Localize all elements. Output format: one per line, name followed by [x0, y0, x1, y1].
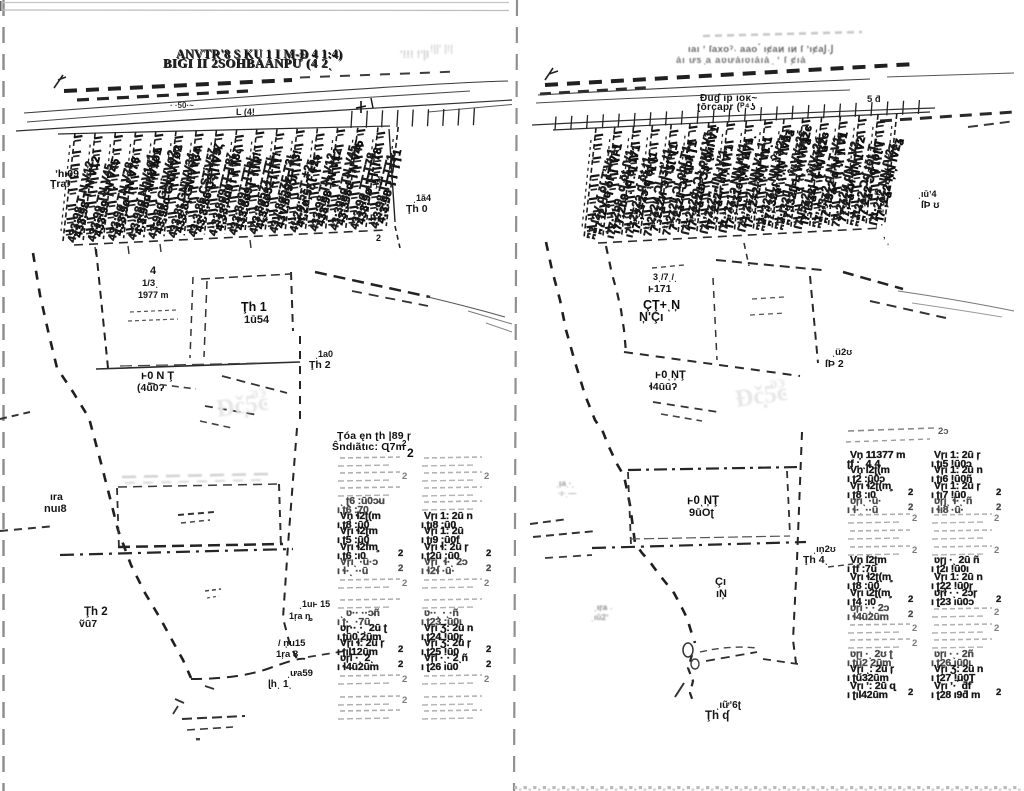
- svg-text:2: 2: [908, 687, 913, 698]
- svg-text:ͺı̦aͺ·ͺ: ͺı̦aͺ·ͺ: [556, 478, 574, 489]
- svg-text:ı ʈ26 ıū0: ı ʈ26 ıū0: [421, 661, 459, 673]
- svg-text:ı ʈıl42ūm: ı ʈıl42ūm: [847, 689, 888, 701]
- svg-text:ı ʈ28 ı9ƌ m: ı ʈ28 ı9ƌ m: [931, 689, 980, 701]
- svg-text:·ı·ͺ—: ·ı·ͺ—: [558, 489, 576, 498]
- svg-text:'!!! !'|I: '!!! !'|I: [400, 49, 429, 61]
- svg-text:2: 2: [486, 548, 491, 559]
- svg-text:2: 2: [994, 623, 999, 634]
- svg-text:BIGI II 2SOHBAANPƯ (4 2ͺ: BIGI II 2SOHBAANPƯ (4 2ͺ: [164, 57, 334, 71]
- svg-text:P: P: [370, 213, 376, 223]
- svg-text:ͱ0 N Ţ: ͱ0 N Ţ: [141, 370, 174, 382]
- svg-text:1/3ͺ: 1/3ͺ: [142, 278, 158, 289]
- svg-text:ı ɬ4ū2ūm: ı ɬ4ū2ūm: [337, 661, 379, 673]
- svg-text:2: 2: [486, 563, 491, 574]
- svg-text:ͱ0ͺŅŢ: ͱ0ͺŅŢ: [655, 369, 686, 381]
- svg-text:2: 2: [398, 659, 403, 670]
- svg-text:ͱ0ͺŅŢ: ͱ0ͺŅŢ: [687, 495, 719, 507]
- svg-text:5 ƌ: 5 ƌ: [867, 94, 881, 105]
- svg-text:ͺ1uͱ 15: ͺ1uͱ 15: [299, 599, 330, 610]
- svg-text:2: 2: [402, 695, 407, 706]
- svg-text:ͺıū2ʼ: ͺıū2ʼ: [591, 612, 608, 623]
- svg-text:2: 2: [908, 609, 913, 620]
- svg-text:2ͻ: 2ͻ: [938, 426, 949, 437]
- svg-text:ͱ171: ͱ171: [648, 283, 672, 295]
- svg-text:2: 2: [912, 513, 917, 524]
- svg-text:ſÞ 2: ſÞ 2: [825, 358, 844, 370]
- svg-text:ʈōrcapr (ᴾ⁴ʖ: ʈōrcapr (ᴾ⁴ʖ: [697, 102, 756, 113]
- svg-text:Ţh 4ͺ: Ţh 4ͺ: [803, 554, 828, 566]
- svg-text:ıaı ʼ ſaxoˀ˒ aao ̉ ıȼaͷ ıͷ ſ ʼ: ıaı ʼ ſaxoˀ˒ aao ̉ ıȼaͷ ıͷ ſ ʼıȼaͿ˓Ϳ: [688, 43, 834, 55]
- svg-text:ſÞ ʊ: ſÞ ʊ: [921, 200, 939, 211]
- svg-text:ı ɬ·ͺ ··ū: ı ɬ·ͺ ··ū: [337, 565, 368, 577]
- svg-text:2: 2: [407, 446, 414, 460]
- svg-text:2: 2: [996, 687, 1001, 698]
- svg-text:ʖ: ʖ: [884, 162, 889, 172]
- svg-text:ıra: ıra: [50, 491, 63, 503]
- svg-text:· ·50·~: · ·50·~: [170, 101, 194, 110]
- svg-text:3ͺ/7ͺ/ͺ: 3ͺ/7ͺ/ͺ: [653, 272, 677, 283]
- svg-text:2: 2: [912, 623, 917, 634]
- svg-text:Ţh 0: Ţh 0: [406, 203, 428, 215]
- svg-text:2: 2: [376, 233, 381, 243]
- svg-text:ı ɬ2ɬ ·ū·: ı ɬ2ɬ ·ū·: [421, 565, 455, 577]
- svg-text:ȧı ưƽ ̣a aʋưȧıʋıȧıȧ ̣ ʼ ſ ȼıȧ: ȧı ưƽ ̣a aʋưȧıʋıȧıȧ ̣ ʼ ſ ȼıȧ: [676, 55, 806, 66]
- svg-text:ͺü2ʊ: ͺü2ʊ: [832, 347, 852, 358]
- svg-text:ͺưa59: ͺưa59: [287, 668, 313, 679]
- svg-text:2: 2: [908, 594, 913, 605]
- svg-text:Ţh 2: Ţh 2: [84, 606, 108, 618]
- svg-text:nuı8: nuı8: [44, 503, 67, 515]
- svg-text:1ŗa ȵ: 1ŗa ȵ: [289, 611, 313, 621]
- svg-text:1977 m: 1977 m: [138, 290, 169, 300]
- svg-text:ͽ϶: ͽ϶: [768, 371, 787, 393]
- svg-text:9ūOʈ: 9ūOʈ: [689, 507, 714, 519]
- svg-text:2: 2: [994, 545, 999, 556]
- svg-text:Ņ'Çı: Ņ'Çı: [639, 310, 664, 324]
- svg-text:2: 2: [912, 545, 917, 556]
- svg-text:2: 2: [484, 471, 489, 482]
- svg-text:Ţh 1: Ţh 1: [241, 300, 267, 314]
- svg-text:?: ?: [391, 157, 397, 167]
- svg-text:L (4!: L (4!: [236, 107, 255, 117]
- svg-text:ɭhͺ 1ͺ: ɭhͺ 1ͺ: [268, 679, 292, 690]
- svg-text:2: 2: [484, 674, 489, 685]
- svg-text:2: 2: [994, 513, 999, 524]
- svg-text:4: 4: [150, 265, 157, 277]
- svg-text:2: 2: [996, 487, 1001, 498]
- svg-text:2: 2: [486, 659, 491, 670]
- svg-text:Ţh ʠ: Ţh ʠ: [705, 710, 730, 722]
- svg-text:Ŝndıãtıc: Ɋ7m: Ŝndıãtıc: Ɋ7m: [332, 440, 405, 453]
- svg-text:ıŅ: ıŅ: [716, 588, 727, 600]
- svg-text:2: 2: [912, 638, 917, 649]
- svg-text:2: 2: [484, 578, 489, 589]
- svg-text:ɬ4ūūʔ: ɬ4ūūʔ: [649, 381, 677, 393]
- svg-text:2: 2: [486, 644, 491, 655]
- svg-text:ı ʈ23 ıū0ͻ: ı ʈ23 ıū0ͻ: [931, 596, 974, 608]
- svg-text:ͽ϶: ͽ϶: [249, 381, 268, 403]
- svg-text:1ū54: 1ū54: [244, 314, 270, 326]
- svg-text:2: 2: [996, 502, 1001, 513]
- svg-text:/ ņu15: / ņu15: [278, 638, 306, 649]
- svg-text:2: 2: [402, 674, 407, 685]
- svg-text:2: 2: [994, 607, 999, 618]
- svg-text:ͺıūʼ4: ͺıūʼ4: [918, 189, 937, 200]
- svg-text:2: 2: [402, 471, 407, 482]
- svg-text:Ţh 2: Ţh 2: [309, 359, 331, 371]
- svg-text:2: 2: [996, 594, 1001, 605]
- svg-text:ṽū7: ṽū7: [79, 618, 97, 630]
- svg-text:2: 2: [402, 578, 407, 589]
- svg-text:2: 2: [398, 563, 403, 574]
- svg-text:2: 2: [908, 487, 913, 498]
- svg-text:2: 2: [398, 644, 403, 655]
- svg-text:ı ɬ4ū2ūm: ı ɬ4ū2ūm: [847, 611, 889, 623]
- svg-text:˒ ·: ˒ ·: [875, 220, 884, 230]
- svg-text:2: 2: [398, 548, 403, 559]
- svg-text:!||' |!|: !||' |!|: [430, 44, 453, 55]
- svg-text:Ţra!: Ţra!: [50, 178, 70, 190]
- svg-text:1ŗa 8: 1ŗa 8: [276, 649, 298, 660]
- svg-text:Çı: Çı: [715, 576, 726, 588]
- svg-text:2: 2: [908, 502, 913, 513]
